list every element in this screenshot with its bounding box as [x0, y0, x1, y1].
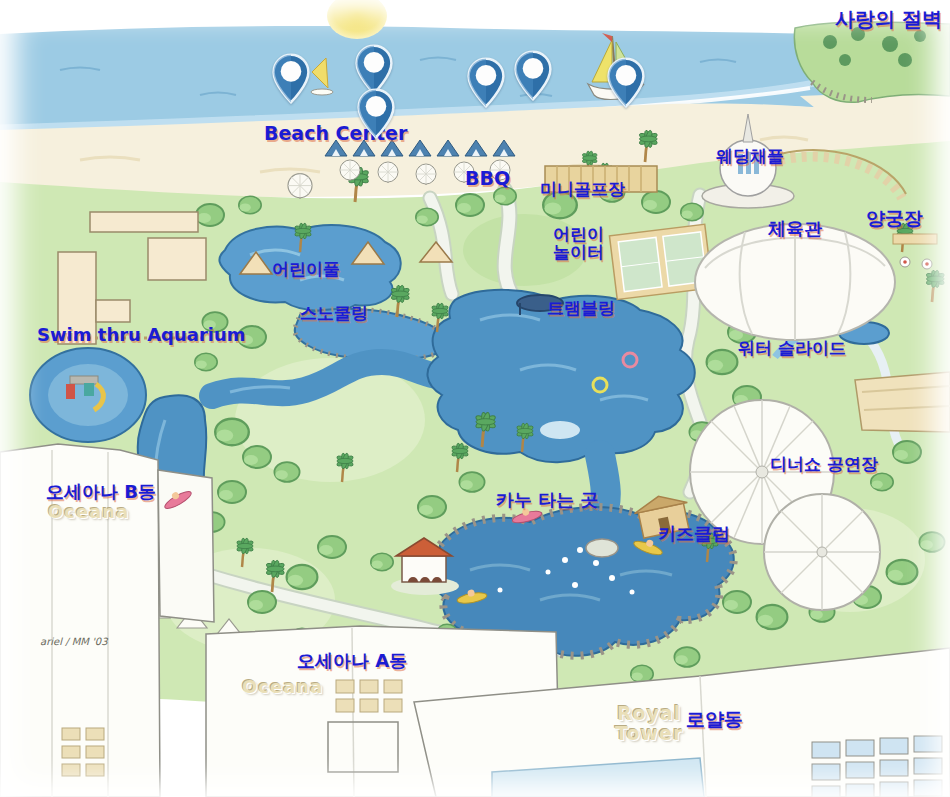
- map-pin-icon: [467, 57, 505, 108]
- map-pin-icon: [272, 53, 310, 104]
- resort-map: 사랑의 절벽Beach CenterBBQ미니골프장웨딩채플체육관양궁장어린이 …: [0, 0, 950, 797]
- map-pin[interactable]: [467, 57, 505, 108]
- pin-layer: [0, 0, 950, 797]
- map-pin-icon: [607, 57, 645, 108]
- map-pin[interactable]: [514, 50, 552, 101]
- map-pin-icon: [357, 88, 395, 139]
- map-pin[interactable]: [607, 57, 645, 108]
- map-pin-icon: [514, 50, 552, 101]
- map-pin[interactable]: [272, 53, 310, 104]
- map-pin[interactable]: [357, 88, 395, 139]
